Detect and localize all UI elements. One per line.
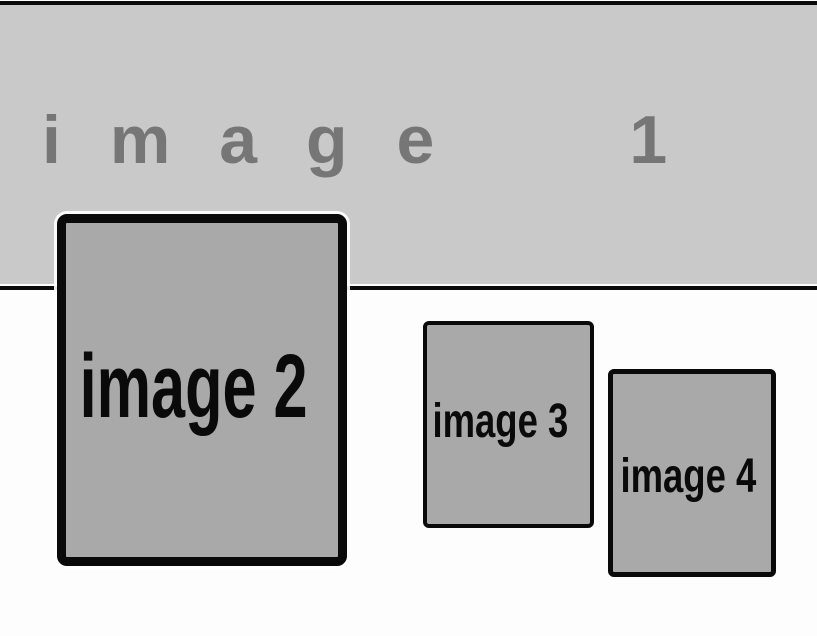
image-2-label: image 2: [80, 342, 308, 432]
image-3-label: image 3: [433, 398, 569, 446]
image-4-placeholder: image 4: [608, 369, 776, 577]
image-3-placeholder: image 3: [423, 321, 594, 528]
banner-image-1-label: image 1: [42, 106, 716, 174]
image-2-placeholder: image 2: [57, 214, 347, 566]
image-4-label: image 4: [620, 453, 756, 501]
wireframe-canvas: image 1 image 2 image 3 image 4: [0, 0, 817, 636]
